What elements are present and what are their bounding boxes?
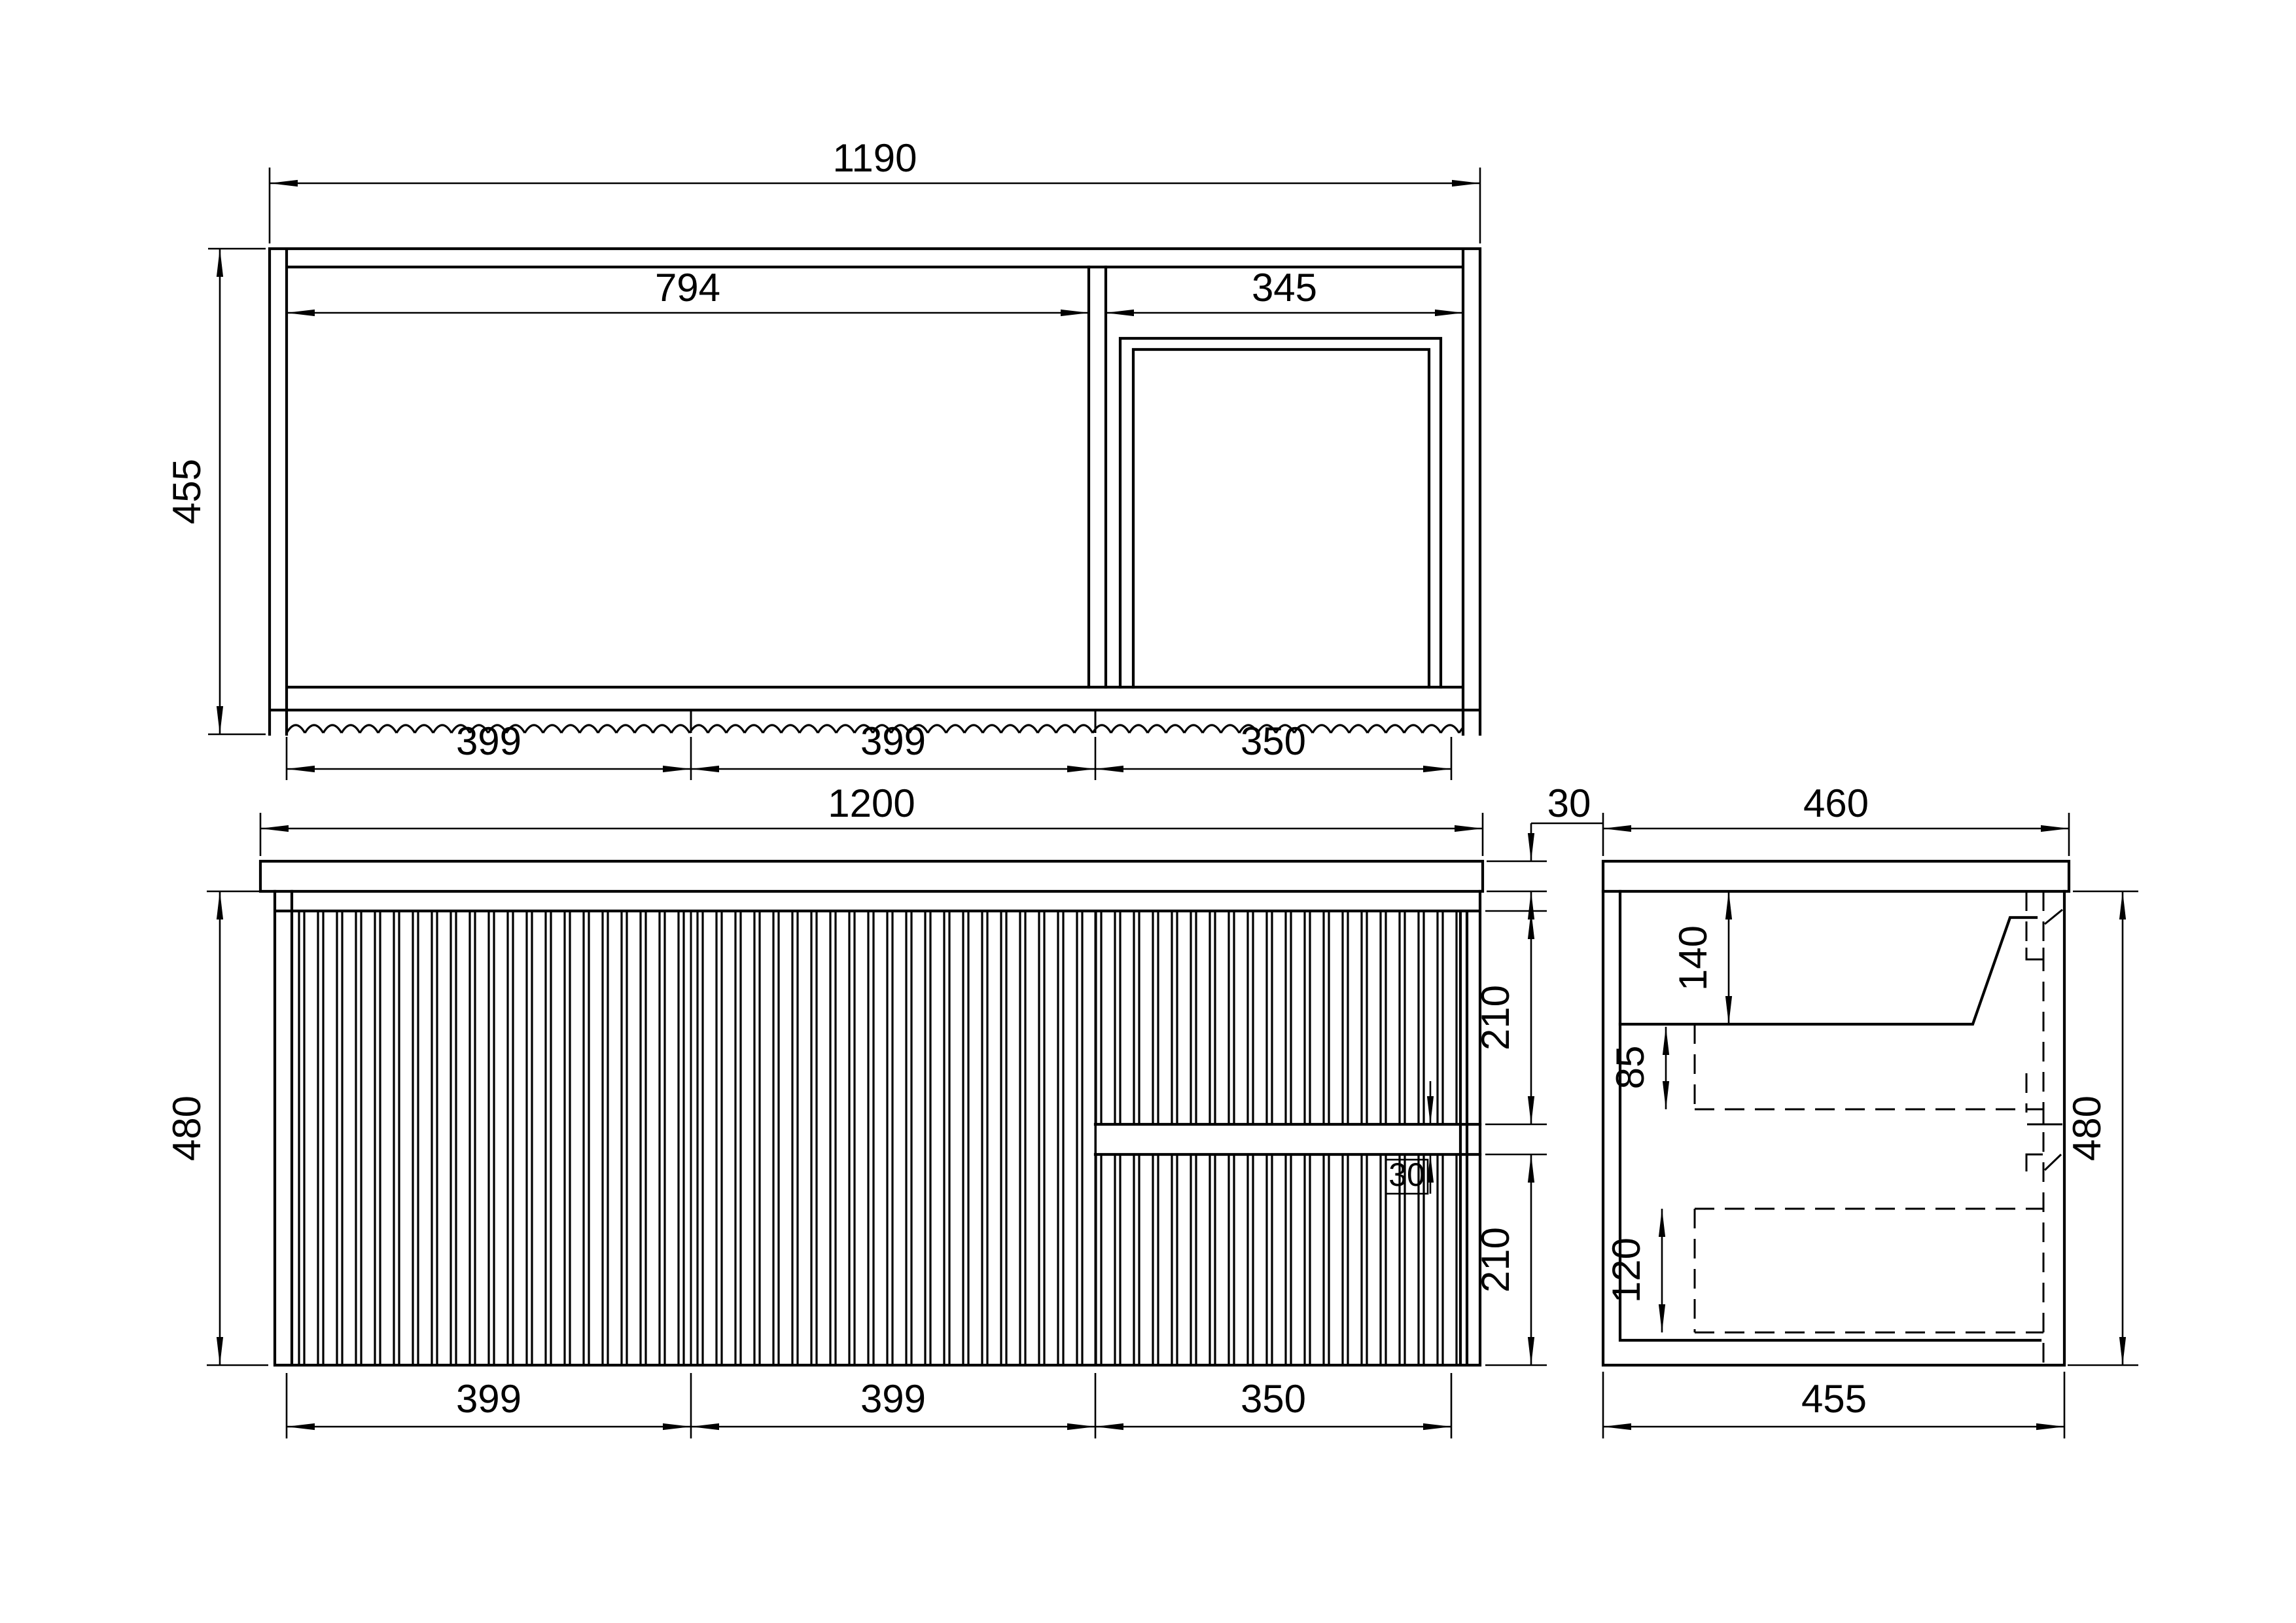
vanity-technical-drawing: 1190 794 345 455 399 399 350: [0, 0, 2296, 1623]
dim-plan-segment-mid-label: 399: [860, 719, 926, 763]
dim-plan-segment-right-label: 350: [1241, 719, 1306, 763]
dim-side-benchtop-depth: 460: [1603, 781, 2069, 856]
front-view: 1200 30 480 210 210: [165, 781, 1603, 1438]
dim-plan-opening-left-label: 794: [655, 266, 720, 310]
dim-front-overall-width-label: 1200: [828, 781, 915, 825]
plan-carcass-outline: [270, 249, 1480, 734]
dim-side-drawer-depth: 120: [1604, 1209, 1662, 1332]
plan-sink-cutout-outer: [1120, 338, 1441, 687]
dim-front-overall-width: 1200: [260, 781, 1483, 856]
dim-plan-depth: 455: [165, 249, 266, 734]
dim-front-bottom-drawer-label: 210: [1474, 1227, 1517, 1293]
dim-plan-opening-left: 794: [287, 266, 1089, 313]
dim-side-height: 480: [2065, 891, 2138, 1365]
dim-front-height: 480: [165, 891, 268, 1365]
dim-front-segment-left-label: 399: [456, 1377, 521, 1421]
dim-front-top-drawer-label: 210: [1474, 985, 1517, 1050]
dim-plan-opening-right-label: 345: [1252, 266, 1317, 310]
dim-front-benchtop-thickness-label: 30: [1547, 781, 1591, 825]
drawing-sheet: 1190 794 345 455 399 399 350: [0, 0, 2296, 1623]
front-drawer-gap-band: [1095, 1124, 1480, 1154]
dim-front-benchtop-thickness: 30: [1487, 781, 1603, 929]
dim-side-drawer-depth-label: 120: [1604, 1238, 1648, 1303]
side-view: 460 140 85 120 480 455: [1603, 781, 2138, 1438]
dim-plan-segment-left-label: 399: [456, 719, 521, 763]
dim-plan-opening-right: 345: [1106, 266, 1463, 313]
dim-front-drawer-gap-label: 30: [1388, 1156, 1425, 1193]
dim-side-basin-depth-label: 140: [1671, 925, 1715, 991]
side-benchtop: [1603, 861, 2069, 891]
dim-front-bottom-drawer: 210: [1474, 1154, 1547, 1365]
dim-front-top-drawer: 210: [1474, 911, 1547, 1124]
dim-front-segment-right-label: 350: [1241, 1377, 1306, 1421]
plan-divider-panel: [1089, 267, 1106, 687]
dim-plan-overall-width-label: 1190: [832, 136, 917, 180]
plan-sink-cutout-inner: [1133, 349, 1429, 687]
dim-plan-depth-label: 455: [165, 459, 209, 524]
dim-side-height-label: 480: [2065, 1096, 2109, 1161]
dim-side-basin-depth: 140: [1671, 891, 1729, 1024]
dim-front-segment-mid-label: 399: [860, 1377, 926, 1421]
dim-side-carcass-depth-label: 455: [1801, 1377, 1867, 1421]
dim-plan-overall-width: 1190: [270, 136, 1480, 243]
dim-plan-segments: 399 399 350: [287, 719, 1451, 780]
side-hidden-drawer-top: [1695, 1024, 2043, 1109]
dim-side-basin-to-drawer: 85: [1608, 1027, 1666, 1109]
side-hidden-drawer-bottom: [1695, 1209, 2043, 1332]
dim-front-height-label: 480: [165, 1096, 209, 1161]
dim-side-basin-to-drawer-label: 85: [1608, 1046, 1652, 1090]
dim-front-segments: 399 399 350: [287, 1373, 1451, 1438]
plan-view: 1190 794 345 455 399 399 350: [165, 136, 1480, 780]
dim-side-carcass-depth: 455: [1603, 1372, 2064, 1438]
dim-side-benchtop-depth-label: 460: [1803, 781, 1869, 825]
front-benchtop: [260, 861, 1483, 891]
